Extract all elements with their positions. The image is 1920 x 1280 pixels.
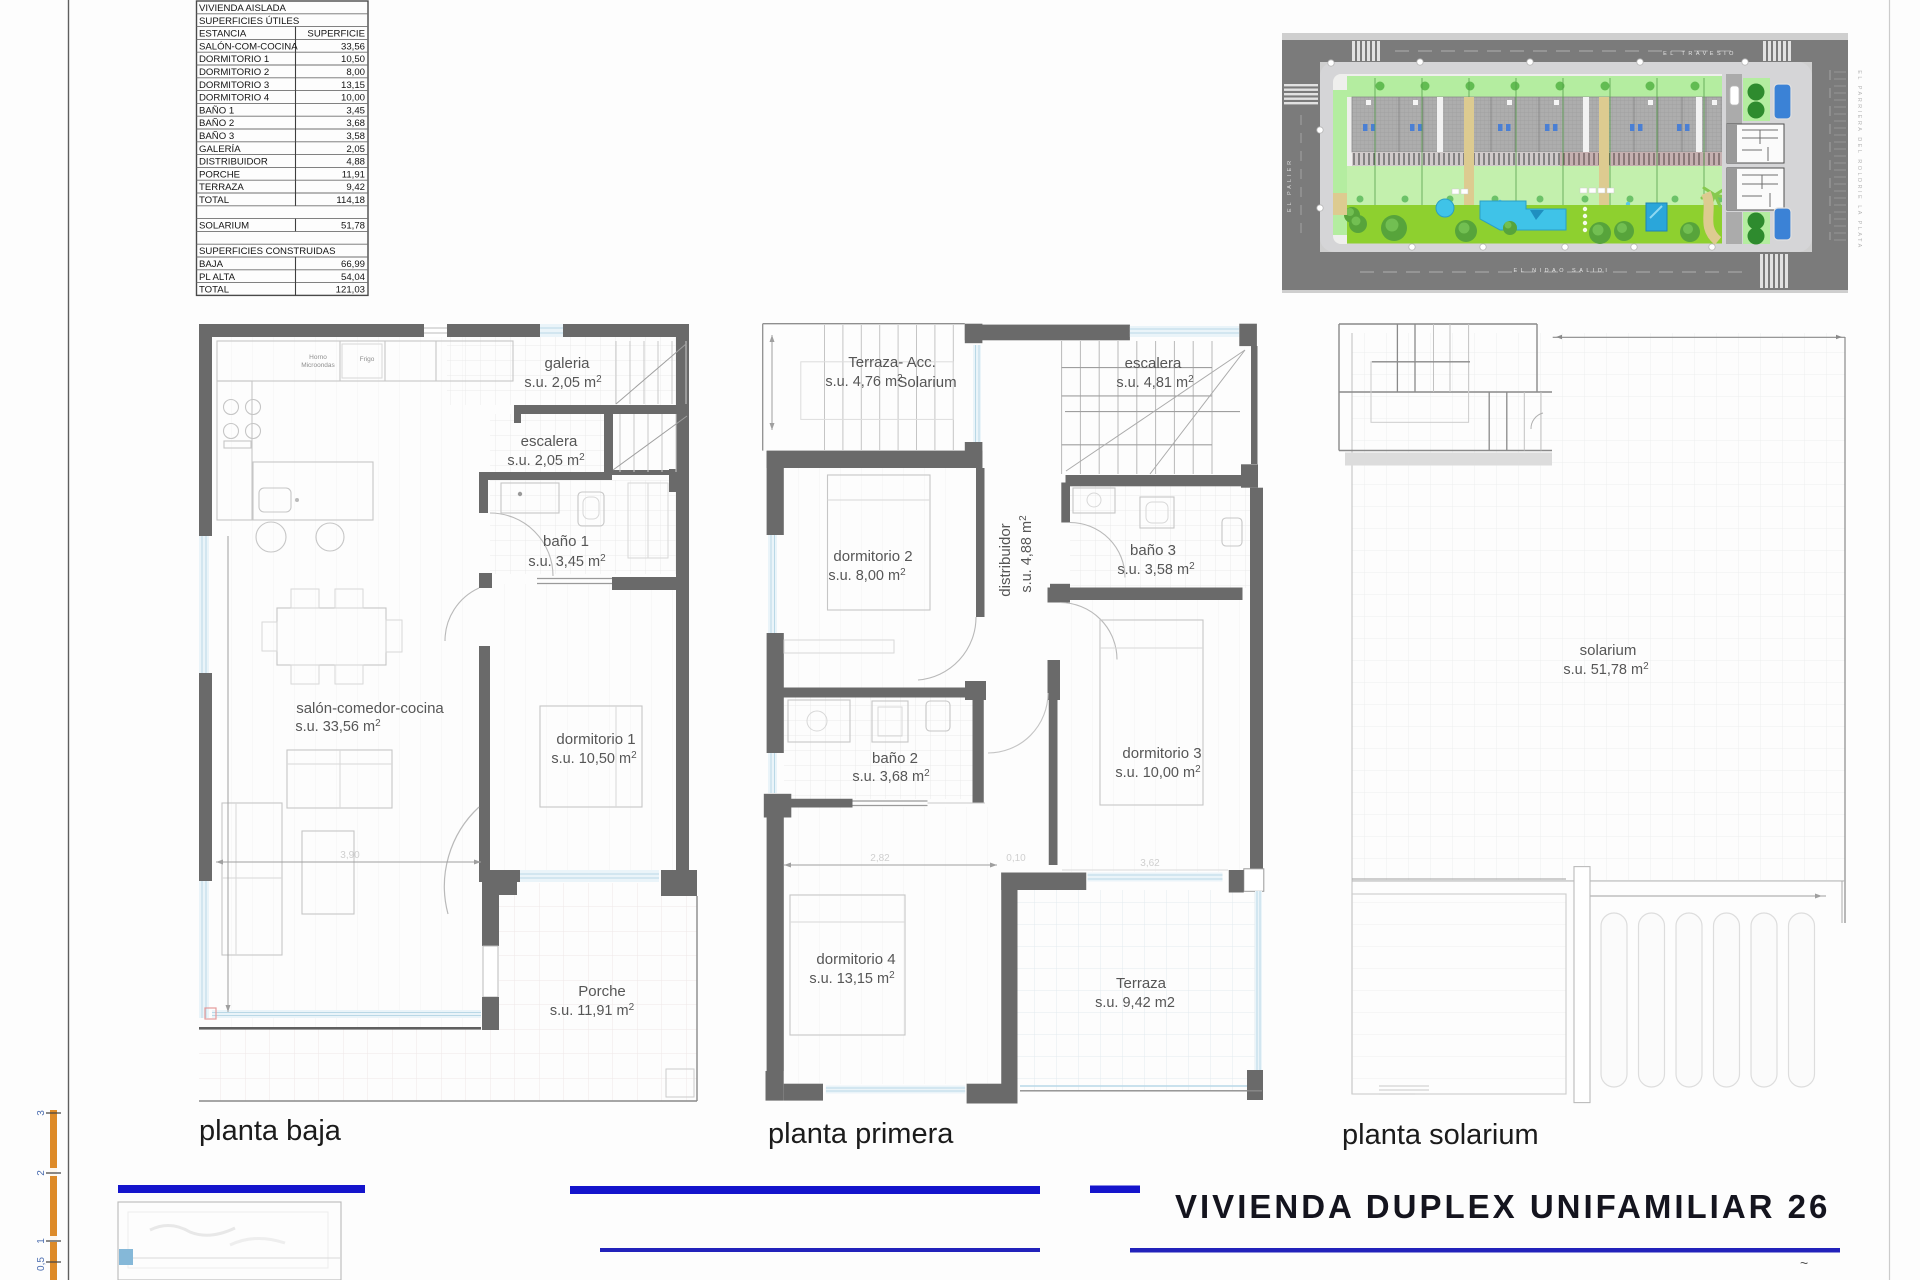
svg-text:66,99: 66,99 [341, 259, 365, 270]
svg-text:VIVIENDA AISLADA: VIVIENDA AISLADA [199, 3, 287, 14]
svg-text:10,00: 10,00 [341, 93, 365, 104]
svg-text:TERRAZA: TERRAZA [199, 182, 244, 193]
svg-text:DISTRIBUIDOR: DISTRIBUIDOR [199, 157, 268, 168]
svg-text:9,42: 9,42 [346, 182, 365, 193]
svg-text:s.u. 11,91 m2: s.u. 11,91 m2 [550, 1002, 635, 1019]
svg-text:11,91: 11,91 [342, 169, 365, 180]
svg-text:s.u. 33,56 m2: s.u. 33,56 m2 [295, 718, 381, 735]
svg-text:Solarium: Solarium [897, 374, 956, 391]
svg-text:8,00: 8,00 [346, 67, 365, 78]
svg-text:BAJA: BAJA [199, 259, 224, 270]
svg-text:54,04: 54,04 [341, 272, 366, 283]
svg-text:SOLARIUM: SOLARIUM [199, 221, 249, 232]
svg-text:3,58: 3,58 [346, 131, 365, 142]
svg-text:0,5: 0,5 [36, 1257, 47, 1271]
svg-text:dormitorio 2: dormitorio 2 [833, 548, 912, 565]
svg-text:VIVIENDA DUPLEX UNIFAMILIAR 26: VIVIENDA DUPLEX UNIFAMILIAR 26 [1175, 1188, 1830, 1225]
svg-text:121,03: 121,03 [336, 285, 365, 296]
svg-text:13,15: 13,15 [341, 80, 365, 91]
svg-text:solarium: solarium [1580, 642, 1637, 659]
svg-text:s.u. 51,78 m2: s.u. 51,78 m2 [1563, 661, 1649, 678]
svg-text:Terraza: Terraza [1116, 975, 1167, 992]
svg-text:galeria: galeria [544, 355, 590, 372]
svg-text:baño 2: baño 2 [872, 750, 918, 767]
svg-text:s.u. 4,88 m2: s.u. 4,88 m2 [1018, 515, 1035, 593]
svg-text:Horno: Horno [309, 354, 327, 361]
svg-text:TOTAL: TOTAL [199, 285, 230, 296]
svg-text:SUPERFICIES CONSTRUIDAS: SUPERFICIES CONSTRUIDAS [199, 246, 335, 257]
svg-text:Frigo: Frigo [360, 356, 375, 363]
svg-text:PL ALTA: PL ALTA [199, 272, 236, 283]
svg-text:planta primera: planta primera [768, 1118, 954, 1150]
svg-text:baño 3: baño 3 [1130, 542, 1176, 559]
svg-text:EL NIDAO SALIDI: EL NIDAO SALIDI [1514, 268, 1611, 274]
svg-text:Porche: Porche [578, 983, 626, 1000]
svg-text:s.u. 13,15 m2: s.u. 13,15 m2 [809, 970, 895, 987]
svg-text:BAÑO 2: BAÑO 2 [199, 118, 234, 129]
svg-text:SUPERFICIES ÚTILES: SUPERFICIES ÚTILES [199, 16, 299, 27]
svg-text:BAÑO 1: BAÑO 1 [199, 105, 234, 116]
svg-text:2: 2 [36, 1170, 47, 1176]
svg-text:3,68: 3,68 [346, 118, 365, 129]
svg-text:planta solarium: planta solarium [1342, 1119, 1539, 1151]
svg-text:EL TRAVESIO: EL TRAVESIO [1663, 51, 1737, 57]
svg-text:DORMITORIO 4: DORMITORIO 4 [199, 93, 270, 104]
svg-text:3,90: 3,90 [340, 850, 360, 861]
svg-text:s.u. 9,42 m2: s.u. 9,42 m2 [1095, 995, 1175, 1011]
svg-text:salón-comedor-cocina: salón-comedor-cocina [296, 700, 444, 717]
svg-text:3: 3 [36, 1110, 47, 1116]
svg-text:33,56: 33,56 [341, 41, 365, 52]
svg-text:EL PALIER: EL PALIER [1287, 158, 1293, 212]
svg-text:dormitorio 3: dormitorio 3 [1122, 745, 1201, 762]
svg-text:2,82: 2,82 [870, 853, 890, 864]
svg-text:TOTAL: TOTAL [199, 195, 230, 206]
svg-text:s.u. 3,45 m2: s.u. 3,45 m2 [528, 553, 606, 570]
svg-text:1: 1 [36, 1238, 47, 1244]
svg-text:EL PARRIERA DEL ROLDRIE LA PLA: EL PARRIERA DEL ROLDRIE LA PLATA [1856, 70, 1862, 250]
svg-text:s.u. 10,00 m2: s.u. 10,00 m2 [1115, 764, 1201, 781]
svg-text:BAÑO 3: BAÑO 3 [199, 131, 234, 142]
svg-text:escalera: escalera [1125, 355, 1182, 372]
svg-text:~: ~ [1800, 1255, 1808, 1271]
svg-text:SALÓN-COM-COCINA: SALÓN-COM-COCINA [199, 41, 298, 52]
svg-text:10,50: 10,50 [341, 54, 365, 65]
svg-text:s.u. 3,58 m2: s.u. 3,58 m2 [1117, 561, 1195, 578]
svg-text:3,62: 3,62 [1140, 858, 1160, 869]
svg-text:distribuidor: distribuidor [997, 523, 1014, 596]
svg-text:s.u. 4,81 m2: s.u. 4,81 m2 [1116, 374, 1194, 391]
svg-text:3,45: 3,45 [346, 105, 365, 116]
svg-text:114,18: 114,18 [336, 195, 365, 206]
svg-text:planta baja: planta baja [199, 1115, 342, 1147]
svg-text:DORMITORIO 2: DORMITORIO 2 [199, 67, 269, 78]
svg-text:4,88: 4,88 [346, 157, 365, 168]
svg-text:s.u. 4,76 m2: s.u. 4,76 m2 [825, 373, 903, 390]
svg-text:SUPERFICIE: SUPERFICIE [307, 29, 365, 40]
svg-text:s.u. 8,00 m2: s.u. 8,00 m2 [828, 567, 906, 584]
svg-text:s.u. 3,68 m2: s.u. 3,68 m2 [852, 768, 930, 785]
svg-text:escalera: escalera [521, 433, 578, 450]
svg-text:PORCHE: PORCHE [199, 169, 240, 180]
svg-text:DORMITORIO 3: DORMITORIO 3 [199, 80, 269, 91]
svg-text:51,78: 51,78 [341, 221, 365, 232]
svg-text:s.u. 2,05 m2: s.u. 2,05 m2 [524, 374, 602, 391]
svg-text:2,05: 2,05 [346, 144, 365, 155]
svg-text:Terraza- Acc.: Terraza- Acc. [848, 354, 936, 371]
svg-text:GALERÍA: GALERÍA [199, 144, 241, 155]
svg-text:s.u. 10,50 m2: s.u. 10,50 m2 [551, 750, 637, 767]
svg-text:dormitorio 1: dormitorio 1 [556, 731, 635, 748]
svg-text:dormitorio 4: dormitorio 4 [816, 951, 895, 968]
svg-text:s.u. 2,05 m2: s.u. 2,05 m2 [507, 452, 585, 469]
svg-text:ESTANCIA: ESTANCIA [199, 29, 247, 40]
svg-text:Microondas: Microondas [301, 362, 335, 369]
svg-text:baño 1: baño 1 [543, 533, 589, 550]
svg-text:DORMITORIO 1: DORMITORIO 1 [199, 54, 269, 65]
svg-text:0,10: 0,10 [1006, 853, 1026, 864]
